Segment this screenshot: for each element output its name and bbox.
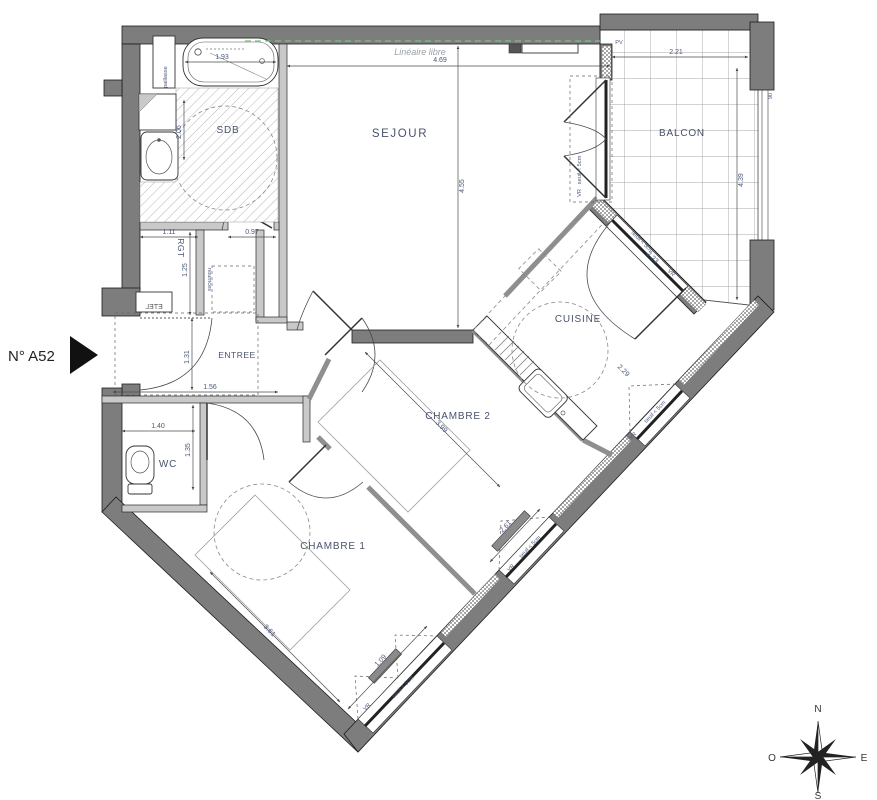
room-label-sdb: SDB — [217, 125, 240, 136]
insulation-diag-2 — [553, 436, 631, 518]
room-label-balcon: BALCON — [659, 128, 705, 139]
dim-rgt-width: 1.11 — [162, 229, 175, 236]
balcony — [600, 26, 768, 308]
dim-rgt-height: 1.25 — [182, 263, 189, 277]
dim-sejour-height: 4.55 — [459, 179, 466, 193]
etel-label: ETEL — [145, 304, 163, 311]
room-label-wc: WC — [159, 459, 177, 470]
washbasin — [141, 132, 178, 180]
door-chambre2 — [325, 318, 375, 392]
room-label-entree: ENTREE — [218, 350, 255, 360]
unit-label: N° A52 — [8, 336, 98, 374]
label-paillasse: paillasse — [163, 66, 169, 88]
wall-rgt-east — [196, 230, 204, 315]
room-label-chambre1: CHAMBRE 1 — [300, 541, 366, 552]
door-sejour — [297, 291, 352, 330]
window-cuisine-south — [629, 384, 690, 446]
compass-east: E — [861, 753, 868, 764]
wall-wc-east — [200, 403, 207, 505]
room-label-rgt: RGT — [176, 238, 186, 257]
room-label-sejour: SEJOUR — [372, 128, 428, 140]
dim-bathtub: 1.93 — [215, 54, 229, 61]
wall-sejour-west — [279, 44, 287, 322]
dim-cuisine-wall: 2.29 — [616, 364, 631, 379]
wall-wc-left — [102, 388, 122, 512]
etel-box: ETEL — [136, 292, 172, 312]
compass-north: N — [814, 704, 821, 715]
unit-number: N° A52 — [8, 348, 55, 365]
floor-plan-svg: ETEL 1.93 2.06 4.69 4.55 2.21 4.39 1.11 … — [0, 0, 877, 800]
floor-plan-page: ETEL 1.93 2.06 4.69 4.55 2.21 4.39 1.11 … — [0, 0, 877, 800]
compass-rose-icon: N S E O — [768, 704, 868, 800]
label-pv: PV — [615, 40, 623, 46]
wall-wc-north — [102, 396, 310, 403]
balcony-floor-grid — [600, 30, 758, 306]
window-sejour-balcony — [564, 76, 612, 202]
chambre1-turning-circle — [214, 484, 310, 580]
door-entry — [140, 318, 212, 390]
dim-wc-width: 1.40 — [151, 423, 165, 430]
wall-sdb-south-left — [140, 222, 228, 230]
room-label-cuisine: CUISINE — [555, 314, 601, 325]
washing-machine — [139, 94, 176, 130]
wall-left-ledge — [104, 80, 122, 96]
dim-entree-width: 1.56 — [203, 384, 217, 391]
wall-left — [122, 44, 140, 290]
radiator-sejour — [522, 44, 578, 53]
dim-wc-height: 1.35 — [185, 443, 192, 457]
label-rail-height: 90 — [768, 93, 774, 99]
wall-wc-south — [122, 505, 207, 512]
wall-balcony-top — [600, 14, 758, 30]
bed-chambre1 — [195, 495, 350, 650]
label-lineaire-libre: Linéaire libre — [394, 47, 446, 57]
dim-balcon-height: 4.39 — [738, 173, 745, 187]
insulation-sejour-east — [602, 46, 611, 78]
label-vr-sejour: VR — [577, 189, 583, 197]
wall-sdb-south-right — [274, 222, 279, 230]
wall-corridor — [303, 396, 310, 442]
wall-sejour-south-stub — [287, 322, 303, 330]
wall-cuisine-extension — [583, 440, 612, 455]
toilet — [126, 446, 154, 494]
wall-entry-stub — [122, 384, 140, 396]
door-wc — [207, 403, 264, 460]
bed-chambre2 — [318, 360, 470, 512]
wall-etel-block — [102, 288, 140, 316]
wc-fixtures — [126, 446, 154, 494]
dim-entree-height: 1.31 — [184, 350, 191, 364]
wall-chambre2-west — [309, 359, 329, 399]
sdb-fixtures — [139, 36, 278, 222]
dim-balcon-width: 2.21 — [669, 49, 683, 56]
label-seuil-sejour: seuil < 5cm — [577, 155, 583, 184]
door-chambre1 — [289, 445, 363, 498]
radiator-sejour-cap — [509, 44, 521, 53]
balcony-pier-top — [750, 22, 774, 90]
compass-west: O — [768, 753, 776, 764]
room-label-chambre2: CHAMBRE 2 — [425, 411, 491, 422]
label-nourrices: nourrices — [206, 268, 212, 291]
dim-sdb-door: 0.97 — [245, 229, 259, 236]
wall-diagonal-southwest — [102, 497, 372, 752]
unit-arrow-icon — [70, 336, 98, 374]
dim-sdb-width: 2.06 — [176, 125, 183, 139]
wall-chambre-boundary-b — [368, 487, 475, 594]
wall-nourrices-south — [256, 317, 287, 323]
nourrices-duct — [212, 266, 254, 312]
wall-nourrices-east — [256, 230, 264, 321]
dim-sejour-width: 4.69 — [433, 57, 447, 64]
compass-south: S — [815, 791, 822, 800]
insulation-diag-3 — [679, 300, 759, 385]
